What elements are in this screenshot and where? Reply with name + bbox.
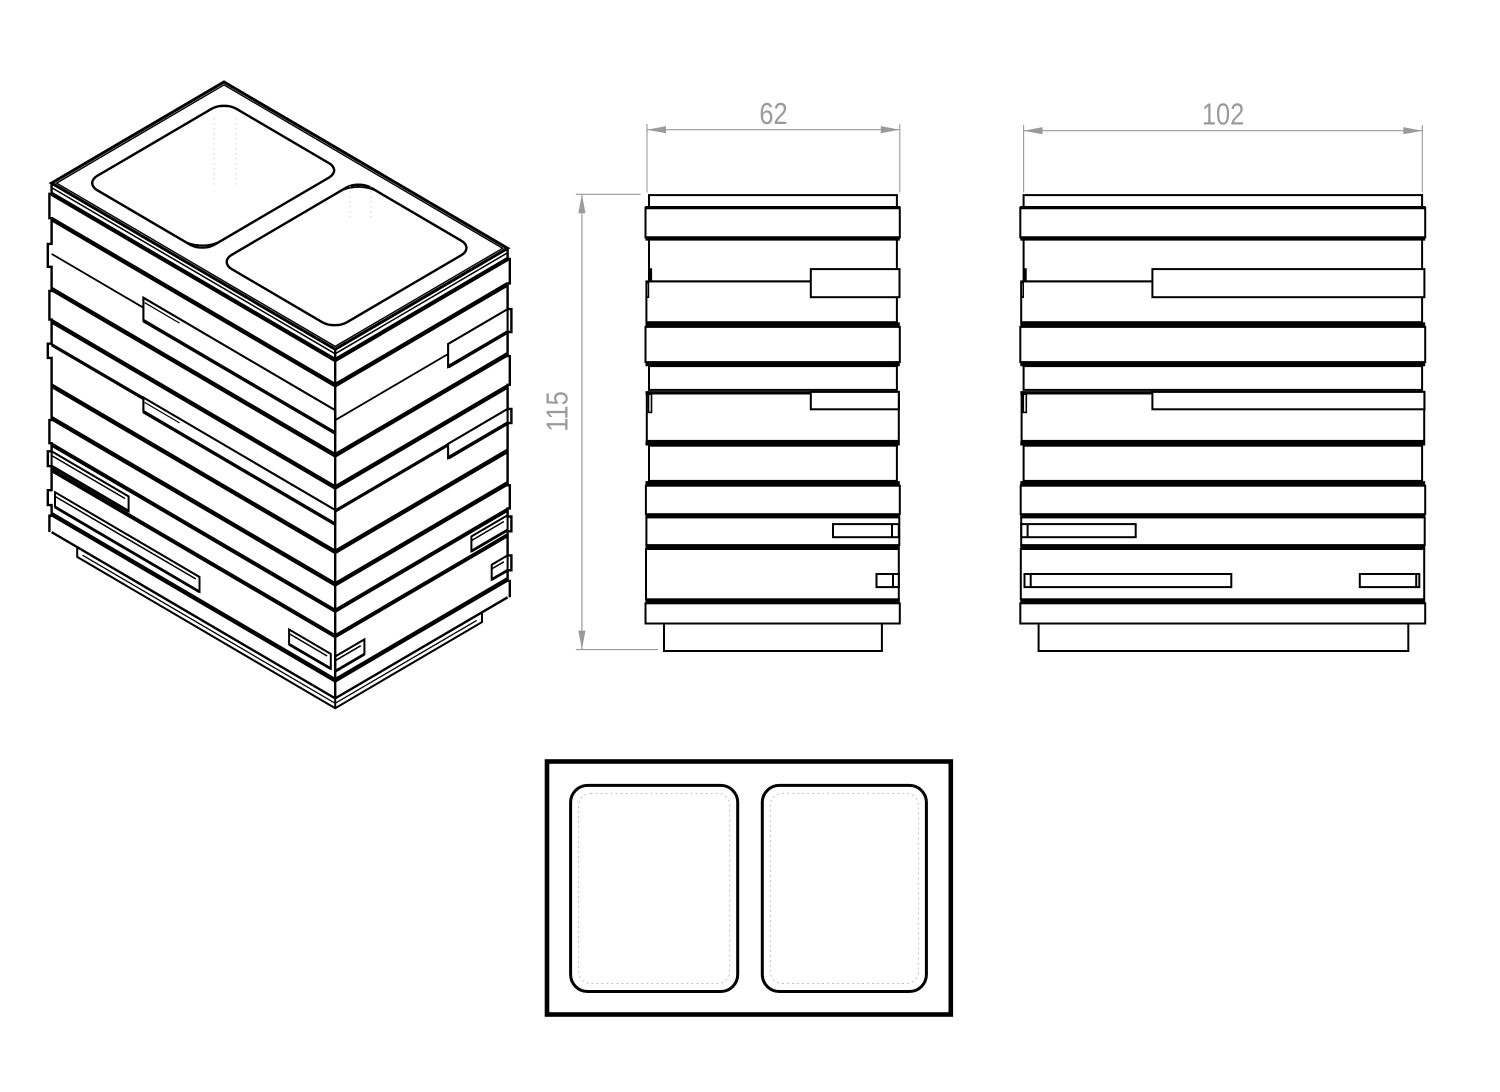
- svg-text:115: 115: [540, 391, 575, 432]
- svg-text:62: 62: [759, 97, 787, 132]
- svg-text:102: 102: [1202, 97, 1244, 132]
